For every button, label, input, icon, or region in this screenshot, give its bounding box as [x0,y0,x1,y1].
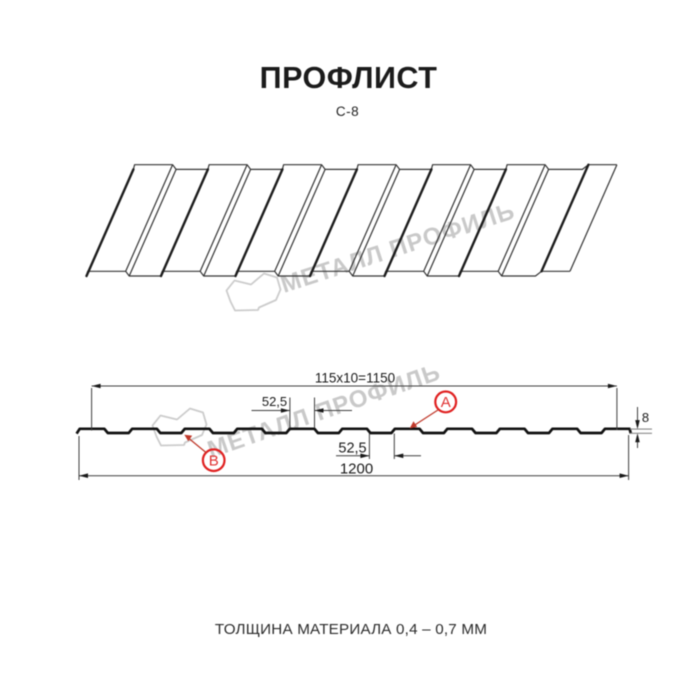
svg-text:A: A [441,394,451,411]
svg-text:С-8: С-8 [336,104,359,119]
svg-text:ПРОФЛИСТ: ПРОФЛИСТ [260,61,438,95]
svg-text:B: B [209,453,219,470]
svg-text:8: 8 [642,410,649,425]
svg-text:52,5: 52,5 [338,440,366,456]
svg-text:52,5: 52,5 [262,394,287,409]
svg-text:115x10=1150: 115x10=1150 [315,371,395,386]
svg-text:ТОЛЩИНА МАТЕРИАЛА 0,4 – 0,7 ММ: ТОЛЩИНА МАТЕРИАЛА 0,4 – 0,7 ММ [215,621,487,638]
svg-text:1200: 1200 [340,460,373,477]
